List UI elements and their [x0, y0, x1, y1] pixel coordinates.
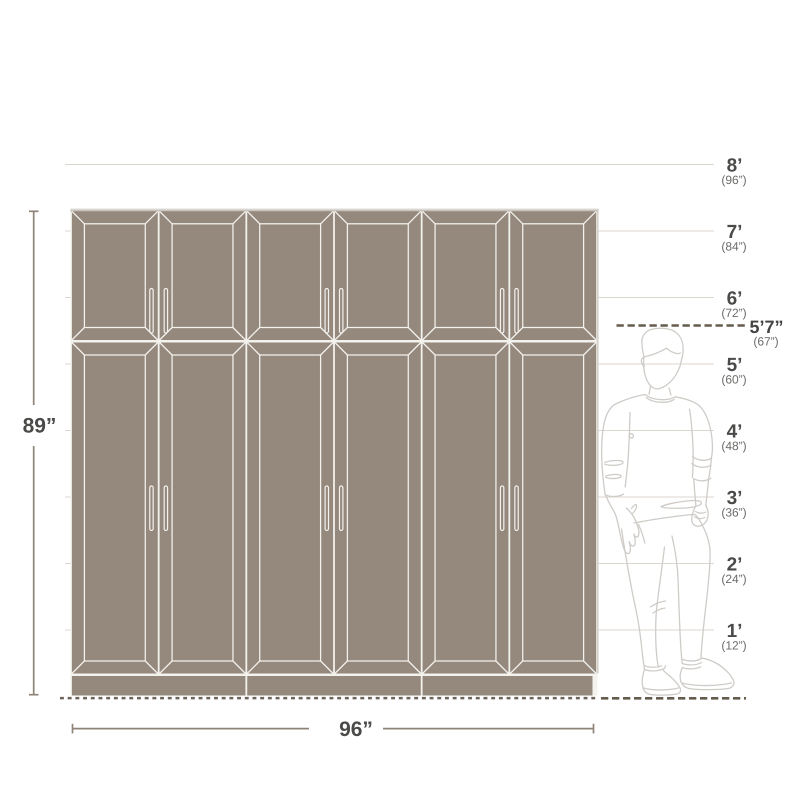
svg-text:96”: 96” — [339, 718, 373, 741]
svg-text:(84”): (84”) — [721, 240, 746, 254]
svg-text:(67”): (67”) — [753, 335, 778, 349]
svg-text:(36”): (36”) — [721, 506, 746, 520]
svg-text:89”: 89” — [23, 415, 57, 438]
svg-text:(12”): (12”) — [721, 639, 746, 653]
svg-text:(48”): (48”) — [721, 439, 746, 453]
svg-text:(72”): (72”) — [721, 306, 746, 320]
svg-text:(60”): (60”) — [721, 373, 746, 387]
svg-text:(96”): (96”) — [721, 173, 746, 187]
svg-text:(24”): (24”) — [721, 572, 746, 586]
